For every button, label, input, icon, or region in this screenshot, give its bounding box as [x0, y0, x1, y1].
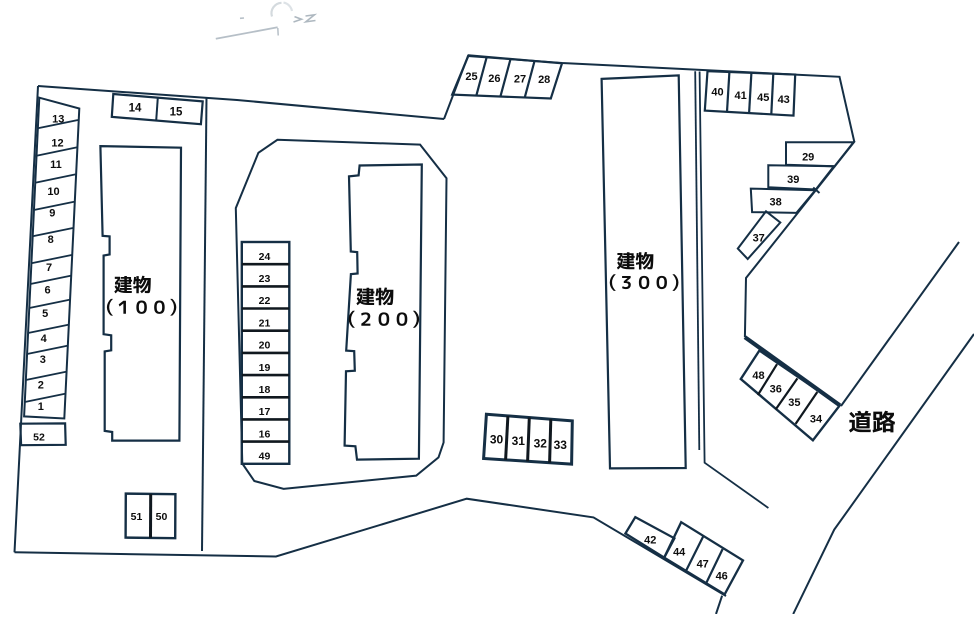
svg-text:2: 2 [38, 380, 44, 392]
svg-text:39: 39 [787, 174, 799, 186]
svg-text:41: 41 [734, 90, 746, 102]
svg-text:37: 37 [753, 232, 765, 244]
svg-text:22: 22 [259, 295, 271, 307]
svg-text:49: 49 [259, 451, 271, 463]
svg-text:40: 40 [711, 87, 723, 99]
svg-text:16: 16 [259, 428, 271, 440]
svg-text:6: 6 [44, 285, 50, 297]
svg-text:28: 28 [538, 74, 550, 86]
svg-text:47: 47 [697, 558, 709, 570]
svg-text:17: 17 [259, 406, 271, 418]
svg-text:45: 45 [757, 92, 769, 104]
svg-text:9: 9 [49, 207, 55, 219]
svg-text:43: 43 [778, 94, 790, 106]
svg-text:48: 48 [752, 370, 764, 382]
svg-text:46: 46 [716, 571, 728, 583]
svg-text:5: 5 [42, 308, 48, 320]
svg-text:44: 44 [673, 547, 686, 559]
svg-text:42: 42 [644, 534, 656, 546]
svg-text:24: 24 [259, 251, 271, 263]
svg-text:14: 14 [129, 103, 142, 115]
svg-text:3: 3 [40, 354, 46, 366]
svg-text:13: 13 [52, 113, 64, 125]
svg-text:4: 4 [41, 333, 48, 345]
svg-text:35: 35 [788, 397, 800, 409]
svg-text:8: 8 [48, 234, 54, 246]
svg-text:33: 33 [554, 438, 568, 452]
svg-text:27: 27 [514, 74, 526, 86]
svg-text:31: 31 [512, 434, 526, 448]
svg-text:21: 21 [259, 317, 271, 329]
svg-text:10: 10 [47, 186, 59, 198]
svg-text:20: 20 [259, 340, 271, 352]
svg-text:32: 32 [534, 437, 548, 451]
svg-text:51: 51 [131, 511, 143, 523]
svg-text:52: 52 [33, 432, 45, 444]
svg-text:25: 25 [465, 71, 477, 83]
svg-text:50: 50 [156, 511, 168, 523]
svg-text:15: 15 [170, 107, 183, 119]
svg-text:18: 18 [259, 384, 271, 396]
svg-text:34: 34 [810, 413, 823, 425]
svg-text:26: 26 [488, 73, 500, 85]
svg-text:23: 23 [259, 273, 271, 285]
svg-text:1: 1 [38, 401, 44, 413]
svg-text:11: 11 [50, 159, 62, 171]
svg-text:38: 38 [769, 196, 781, 208]
svg-text:19: 19 [259, 362, 271, 374]
svg-text:36: 36 [770, 383, 782, 395]
svg-text:12: 12 [51, 138, 63, 150]
svg-text:7: 7 [46, 262, 52, 274]
svg-text:30: 30 [490, 433, 504, 447]
svg-text:29: 29 [802, 151, 814, 163]
